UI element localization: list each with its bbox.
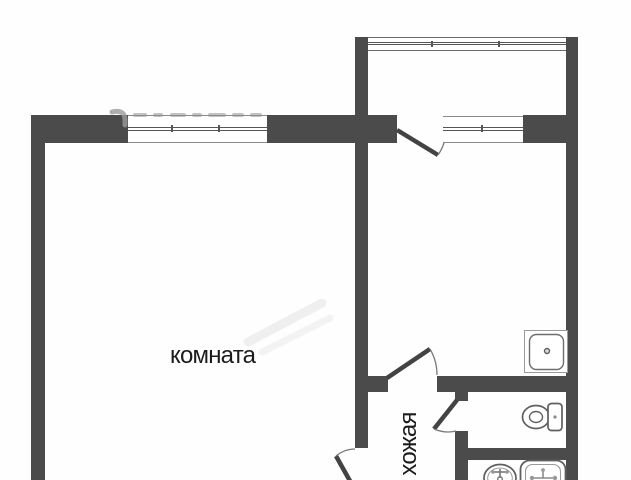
window-tick: [481, 125, 483, 132]
window-tick: [498, 41, 500, 47]
wall-kitchen-hall-stub: [355, 376, 388, 392]
bathtub-icon: [521, 461, 566, 480]
kitchen-sink-icon: [525, 331, 568, 373]
kitchen-window: [443, 116, 523, 143]
watermark: [170, 113, 186, 117]
wall-balcony-kitchen-stub: [368, 115, 397, 143]
balcony-door: [397, 130, 444, 155]
balcony-glazing-glass: [368, 42, 566, 45]
watermark: [133, 113, 147, 117]
watermark: [232, 113, 244, 117]
floorplan-image[interactable]: комната хожая: [0, 0, 631, 480]
wall-wc-bath-divider: [455, 448, 566, 460]
wall-left-exterior: [31, 115, 45, 480]
kitchen-window-glass: [443, 127, 523, 131]
hallway-label: хожая: [396, 412, 422, 475]
wall-right-exterior: [566, 37, 578, 480]
balcony-glazing: [368, 37, 566, 51]
room-door: [336, 449, 355, 480]
wall-balcony-kitchen-right: [523, 115, 566, 143]
watermark: [112, 111, 330, 352]
room-label: комната: [170, 343, 255, 369]
watermark: [153, 113, 163, 117]
wall-wc-left-top: [455, 392, 468, 401]
window-tick: [171, 125, 173, 132]
kitchen-door: [387, 349, 437, 378]
room-window: [128, 115, 267, 143]
watermark: [250, 113, 262, 117]
wall-top-room-right: [267, 115, 368, 143]
toilet-icon: [523, 404, 563, 431]
plan-symbols-layer: [0, 0, 631, 480]
window-tick: [218, 125, 220, 132]
wall-kitchen-hall: [437, 376, 566, 392]
watermark: [208, 113, 226, 117]
wall-top-room-left: [31, 115, 128, 143]
washbasin-icon: [484, 465, 516, 480]
wc-door: [434, 400, 457, 432]
window-tick: [431, 41, 433, 47]
watermark: [192, 113, 202, 117]
room-window-glass: [128, 127, 267, 131]
